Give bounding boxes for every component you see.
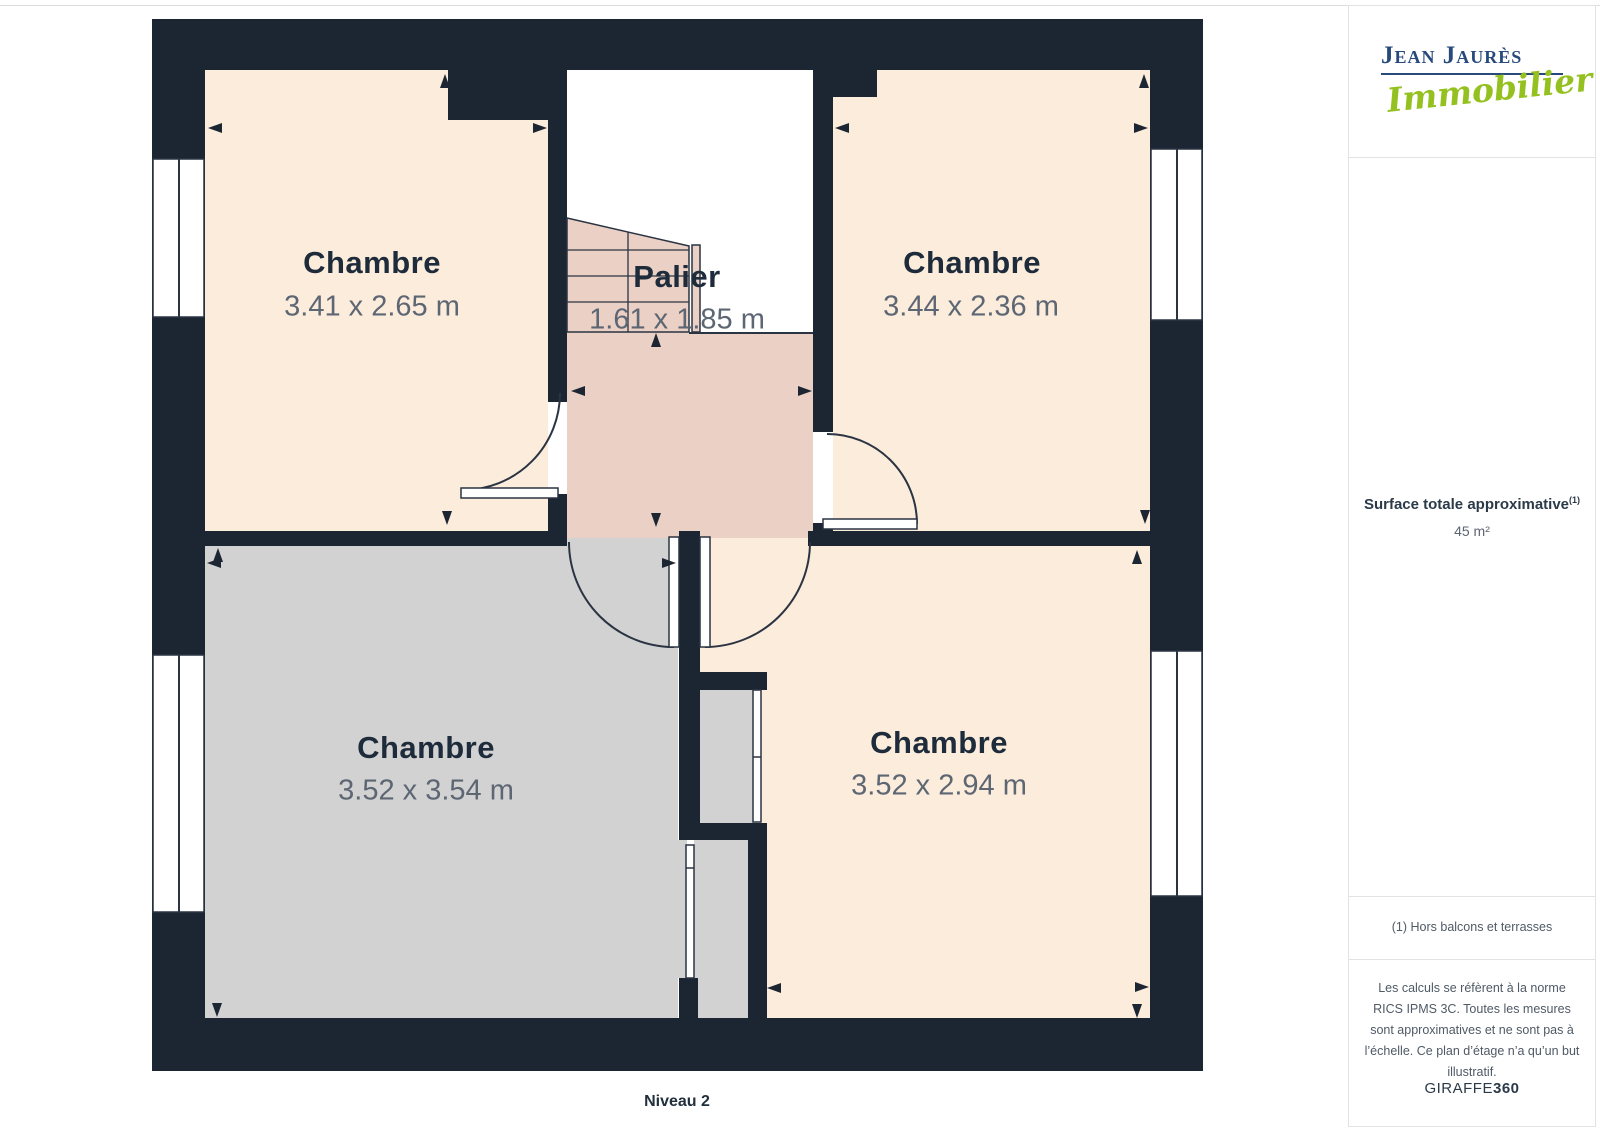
dimension-arrow-down-icon [1140,510,1150,524]
dimension-arrow-left-icon [207,558,221,568]
dimension-arrow-right-icon [1134,123,1148,133]
partition-window-lower [686,845,694,978]
wall-lower-stub [679,978,698,1018]
room-dimensions: 3.52 x 2.94 m [851,770,1027,803]
dimension-arrow-down-icon [651,513,661,527]
dimension-arrow-left-icon [571,386,585,396]
dimension-arrow-down-icon [212,1003,222,1017]
wall-stair-left-upper [548,70,567,402]
wall-middle-vertical [679,531,700,840]
wall-lower-vertical [748,840,767,1018]
dimension-arrow-right-icon [533,123,547,133]
dimension-arrow-down-icon [1132,1004,1142,1018]
agency-logo-tagline: Immobilier [1385,62,1569,120]
surface-total-value: 45 m² [1349,523,1595,539]
dimension-arrow-down-icon [442,511,452,525]
wall-shaft-top-stub [700,672,767,690]
dimension-arrow-right-icon [1135,982,1149,992]
info-sidebar: Jean Jaurès Immobilier Surface totale ap… [1348,5,1596,1127]
surface-total-footnote-ref: (1) [1569,495,1580,505]
dimension-arrow-up-icon [1139,74,1149,88]
sidebar-divider [1349,157,1595,158]
wall-shaft-band [679,823,767,840]
wall-top [152,19,1203,70]
wall-horizontal-left [205,531,565,546]
dimension-arrow-up-icon [440,74,450,88]
room-label: Chambre [303,245,441,281]
dimension-arrow-right-icon [798,386,812,396]
room-label: Chambre [870,725,1008,761]
dimension-arrow-left-icon [835,123,849,133]
surface-total-text: Surface totale approximative [1364,496,1569,513]
surface-footnote: (1) Hors balcons et terrasses [1349,920,1595,934]
gray-room-extension [678,840,687,978]
dimension-arrow-left-icon [208,123,222,133]
wall-horizontal-right [808,531,1150,546]
room-dimensions: 3.41 x 2.65 m [284,291,460,324]
wall-notch-top-right [833,70,877,97]
room-label: Chambre [357,730,495,766]
wall-bottom [152,1018,1203,1071]
room-dimensions: 3.52 x 3.54 m [338,775,514,808]
surface-total-title: Surface totale approximative(1) [1349,495,1595,513]
room-label: Chambre [903,245,1041,281]
giraffe360-brand-name: GIRAFFE [1424,1080,1493,1097]
room-dimensions: 3.44 x 2.36 m [883,291,1059,324]
room-dimensions: 1.61 x 1.85 m [589,304,765,337]
dimension-arrow-left-icon [767,983,781,993]
sidebar-divider [1349,896,1595,897]
wall-left [152,19,205,1071]
wall-notch-top-left [448,70,548,120]
floor-level-label: Niveau 2 [644,1093,710,1111]
dimension-arrow-up-icon [1132,550,1142,564]
floor-plan: Chambre 3.41 x 2.65 m Chambre 3.44 x 2.3… [0,0,1348,1131]
disclaimer-text: Les calculs se réfèrent à la norme RICS … [1362,978,1582,1083]
wall-right [1150,19,1203,1071]
sidebar-divider [1349,959,1595,960]
agency-logo: Jean Jaurès Immobilier [1381,42,1566,120]
shaft-lower-floor [694,840,748,1018]
floor-plan-page: { "page": { "floor_label": "Niveau 2" },… [0,0,1600,1131]
wall-stair-right-upper [813,70,833,432]
dimension-arrow-right-icon [662,558,676,568]
giraffe360-brand: GIRAFFE360 [1349,1080,1595,1097]
room-label: Palier [633,259,720,295]
giraffe360-brand-suffix: 360 [1493,1080,1520,1097]
palier-floor [567,332,813,538]
shaft-upper-floor [700,690,753,823]
